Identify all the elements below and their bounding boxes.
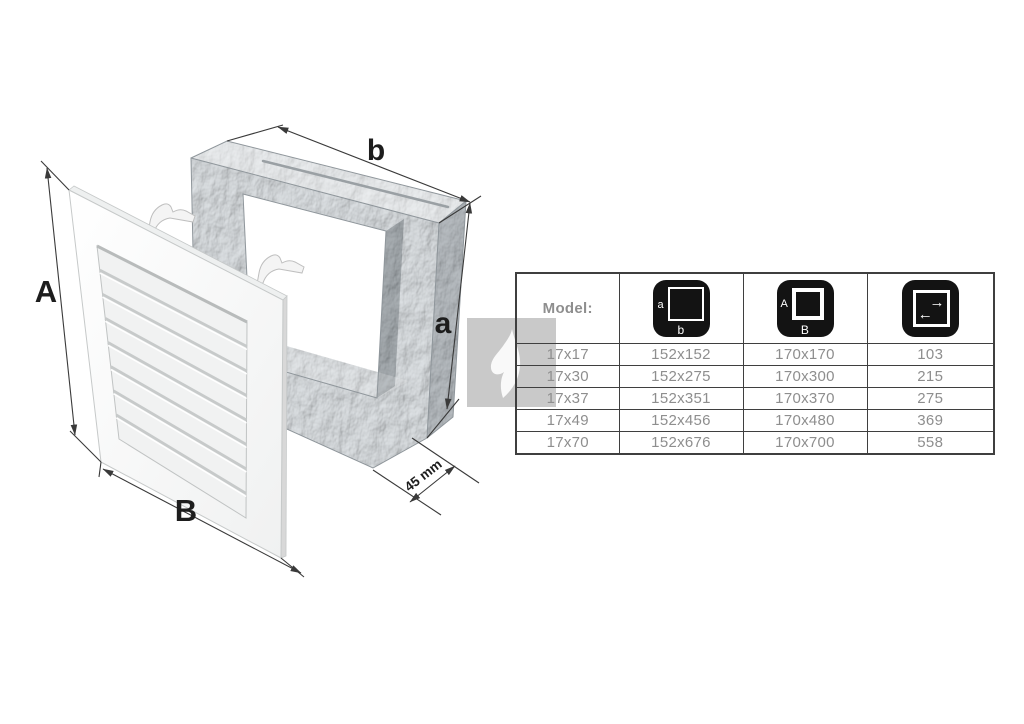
extension-line <box>41 161 69 190</box>
table-cell: 170x170 <box>743 344 867 366</box>
label-a: a <box>435 307 452 340</box>
spec-table: Model: a b A B → ← <box>515 272 995 455</box>
square-outline <box>668 287 704 321</box>
table-row: 17x17 152x152 170x170 103 <box>516 344 994 366</box>
inner-dimension-icon: a b <box>653 280 710 337</box>
mounting-clip <box>257 255 304 284</box>
label-A: A <box>35 274 57 309</box>
table-cell: 103 <box>867 344 994 366</box>
table-cell: 152x152 <box>619 344 743 366</box>
table-cell: 170x300 <box>743 366 867 388</box>
outer-dimension-icon: A B <box>777 280 834 337</box>
icon-label-b: b <box>653 324 710 336</box>
table-row: 17x37 152x351 170x370 275 <box>516 388 994 410</box>
icon-label-B: B <box>777 324 834 336</box>
table-cell: 17x30 <box>516 366 619 388</box>
table-cell: 170x370 <box>743 388 867 410</box>
page: A B b a 45 mm Model: a b <box>0 0 1024 724</box>
label-45mm: 45 mm <box>402 456 445 494</box>
label-b: b <box>367 134 385 167</box>
label-B: B <box>175 493 197 528</box>
icon-label-a: a <box>658 300 664 311</box>
model-header-cell: Model: <box>516 273 619 344</box>
icon-label-A: A <box>781 299 789 310</box>
extension-line <box>281 558 304 577</box>
table-row: 17x30 152x275 170x300 215 <box>516 366 994 388</box>
exploded-view-diagram: A B b a 45 mm <box>0 0 512 660</box>
table-cell: 170x480 <box>743 410 867 432</box>
table-cell: 215 <box>867 366 994 388</box>
extension-line <box>99 462 101 477</box>
extension-line <box>227 125 283 141</box>
airflow-icon: → ← <box>902 280 959 337</box>
extension-line <box>70 431 101 462</box>
airflow-header-cell: → ← <box>867 273 994 344</box>
table-cell: 17x37 <box>516 388 619 410</box>
table-cell: 17x49 <box>516 410 619 432</box>
left-arrow-icon: ← <box>918 309 933 321</box>
table-header-row: Model: a b A B → ← <box>516 273 994 344</box>
table-cell: 275 <box>867 388 994 410</box>
table-cell: 152x456 <box>619 410 743 432</box>
table-cell: 152x676 <box>619 432 743 455</box>
table-cell: 152x351 <box>619 388 743 410</box>
table-cell: 17x70 <box>516 432 619 455</box>
table-cell: 558 <box>867 432 994 455</box>
table-row: 17x70 152x676 170x700 558 <box>516 432 994 455</box>
inner-dimension-header-cell: a b <box>619 273 743 344</box>
table-cell: 17x17 <box>516 344 619 366</box>
table-row: 17x49 152x456 170x480 369 <box>516 410 994 432</box>
table-cell: 170x700 <box>743 432 867 455</box>
square-outline <box>792 288 824 320</box>
table-cell: 152x275 <box>619 366 743 388</box>
outer-dimension-header-cell: A B <box>743 273 867 344</box>
table-cell: 369 <box>867 410 994 432</box>
square-outline: → ← <box>913 290 950 327</box>
